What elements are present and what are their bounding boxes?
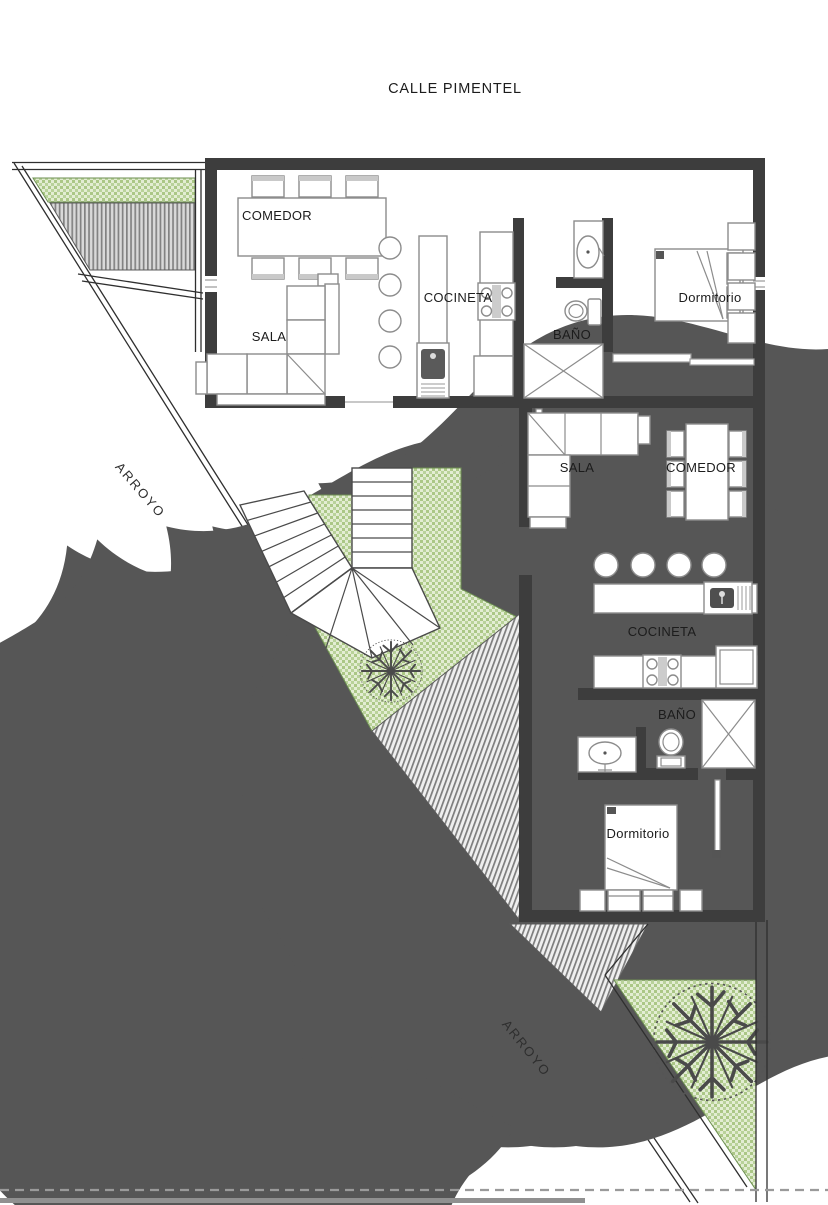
unit-top-sala-label: SALA <box>252 329 286 344</box>
unit-top-cocineta-label: COCINETA <box>424 290 493 305</box>
unit-bottom-sala-label: SALA <box>560 460 594 475</box>
appliance <box>474 356 513 396</box>
street-label-top: CALLE PIMENTEL <box>388 81 522 97</box>
unit-bottom-dormitorio-label: Dormitorio <box>607 826 670 841</box>
unit-bottom-cocineta-label: COCINETA <box>628 624 697 639</box>
shower-icon <box>702 700 755 768</box>
sink-icon <box>417 343 449 398</box>
window-icon <box>205 276 217 292</box>
stove-icon <box>643 655 681 688</box>
bathroom-sink-icon <box>574 221 604 278</box>
unit-top-bano-label: BAÑO <box>553 327 591 342</box>
floor-plan-page: CALLE PIMENTEL <box>0 0 828 1205</box>
bathroom-sink-icon <box>578 737 636 772</box>
bed-icon <box>605 805 677 890</box>
unit-top-comedor: COMEDOR <box>238 176 386 279</box>
unit-bottom-comedor: COMEDOR <box>666 424 746 520</box>
unit-top-dormitorio-label: Dormitorio <box>679 290 742 305</box>
unit-top-comedor-label: COMEDOR <box>242 208 312 223</box>
unit-bottom-comedor-label: COMEDOR <box>666 460 736 475</box>
toilet-icon <box>657 729 685 768</box>
bottom-solid-line <box>0 1198 585 1203</box>
sink-icon <box>704 582 752 614</box>
site-plan-svg: CALLE PIMENTEL <box>0 0 828 1205</box>
dining-table-icon <box>238 176 386 279</box>
closet-icon <box>728 223 755 343</box>
unit-bottom-bano-label: BAÑO <box>658 707 696 722</box>
shower-icon <box>524 344 603 398</box>
fridge-icon <box>716 646 757 688</box>
